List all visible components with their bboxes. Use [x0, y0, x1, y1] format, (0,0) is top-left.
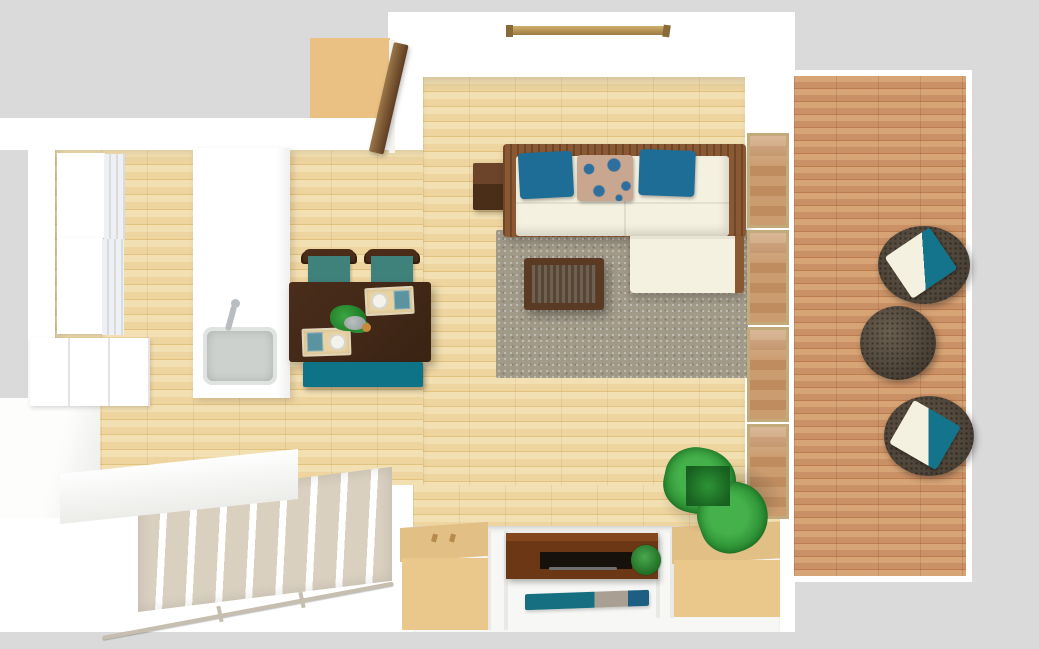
chair-cushion: [889, 400, 961, 470]
kitchen-base-cabinet[interactable]: [30, 338, 150, 406]
sofa-pillow-teal-1: [518, 151, 574, 200]
sofa-chaise: [630, 236, 744, 293]
dining-bench[interactable]: [303, 362, 423, 387]
place-setting-2: [302, 327, 352, 357]
place-setting-1: [364, 286, 414, 317]
shoe-cabinet-right-front: [674, 560, 780, 617]
plate: [371, 292, 389, 310]
sideboard-handle-icon: [549, 567, 617, 570]
fruit: [362, 323, 371, 332]
chair-seat: [308, 256, 350, 284]
shoe-cabinet-left-front: [402, 558, 488, 630]
shoe-cabinet-left-top[interactable]: [400, 522, 488, 562]
kitchen-wall-cabinet-2[interactable]: [57, 238, 103, 334]
glass-display-shelf-1: [104, 154, 125, 240]
dining-chair-1[interactable]: [303, 249, 355, 285]
plant-foliage: [686, 466, 730, 506]
napkin: [393, 290, 410, 310]
dining-chair-2[interactable]: [366, 249, 418, 285]
kitchen-wall-cabinet-1[interactable]: [57, 153, 105, 238]
faucet-head-icon: [231, 299, 240, 308]
door-panel-3: [747, 327, 789, 422]
napkin: [307, 332, 324, 352]
curtain-rail[interactable]: [508, 26, 668, 35]
coffee-table-slatted-top: [532, 265, 596, 303]
floorplan-render: [0, 0, 1039, 649]
rattan-chair-bottom[interactable]: [884, 396, 974, 476]
sofa-pillow-floral: [577, 155, 633, 201]
outside-background-strip: [0, 150, 28, 398]
kitchen-sink-basin[interactable]: [203, 327, 277, 385]
door-panel-2: [747, 230, 789, 325]
plate: [329, 333, 347, 351]
chair-seat: [371, 256, 413, 284]
round-rattan-table[interactable]: [860, 306, 936, 380]
sofa-pillow-teal-2: [638, 149, 696, 197]
chair-cushion: [885, 227, 958, 299]
glass-display-shelf-2: [102, 239, 124, 335]
door-panel-1: [747, 133, 789, 228]
rattan-chair-top[interactable]: [878, 226, 970, 304]
